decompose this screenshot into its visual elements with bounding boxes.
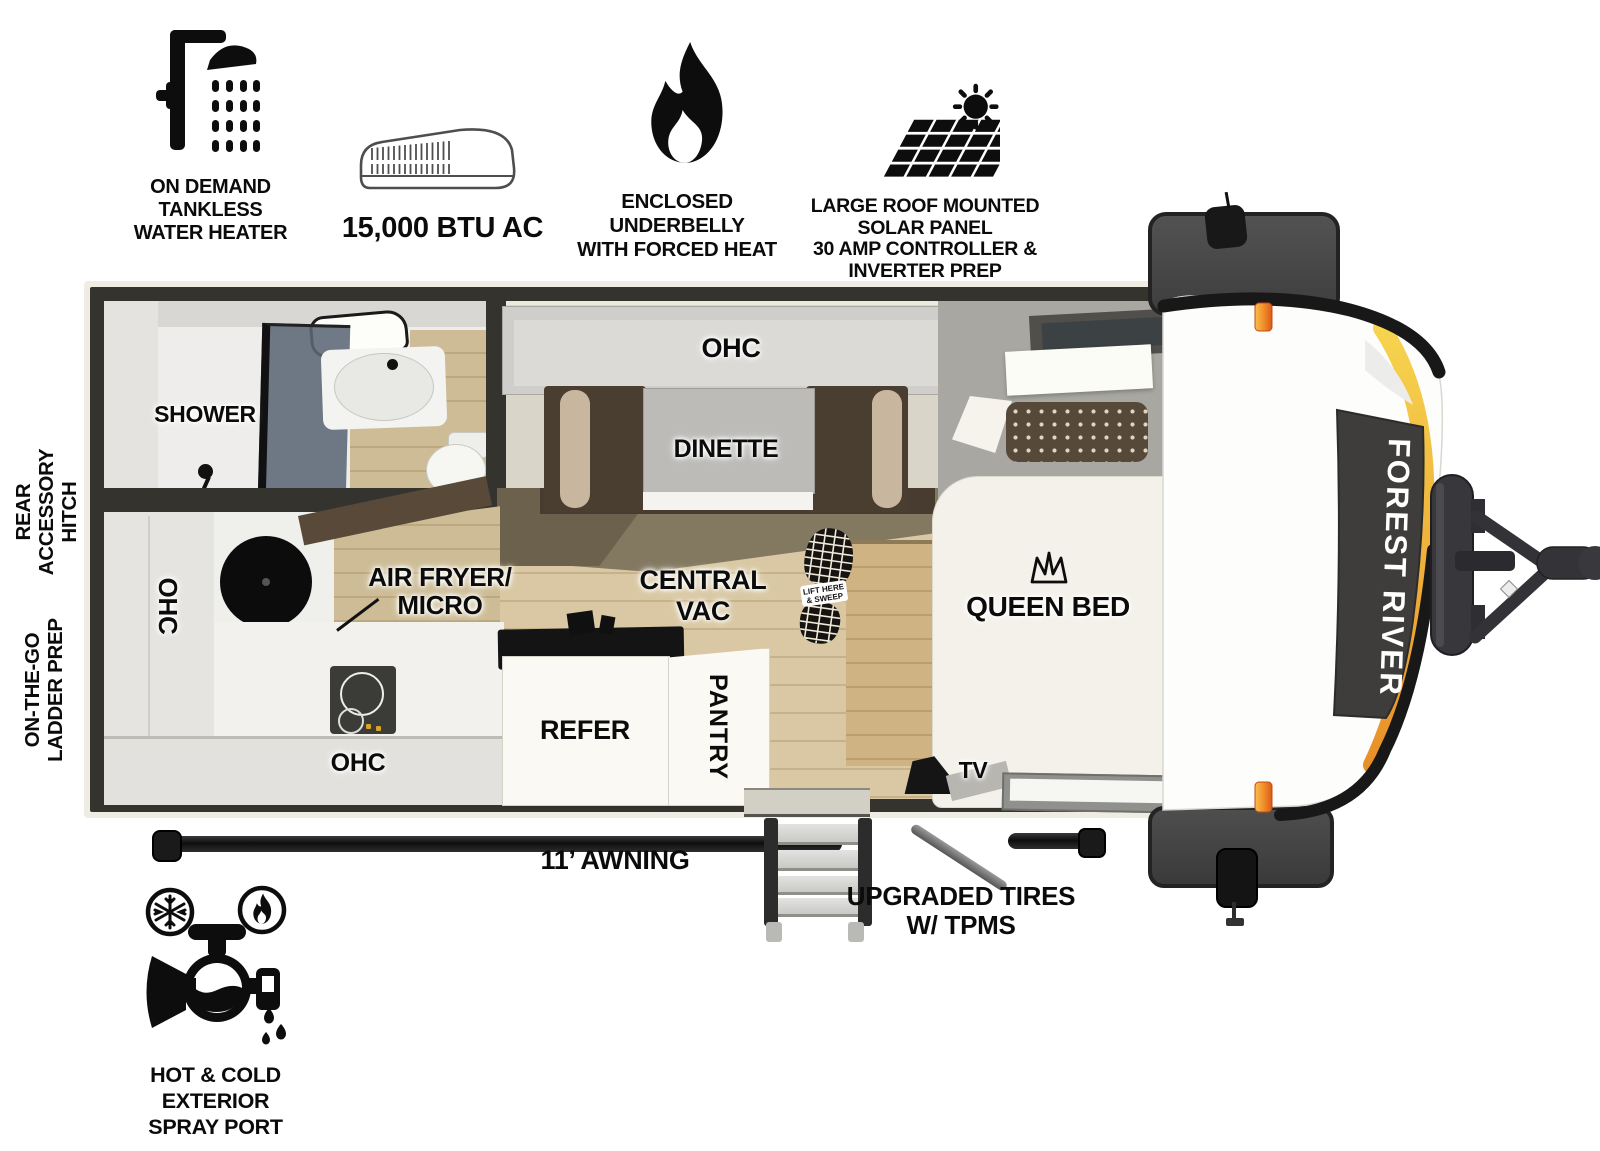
entry-threshold <box>744 788 870 817</box>
awning-rod-right-endcap <box>1078 828 1106 858</box>
forced-heat-flame-icon <box>634 36 742 184</box>
dinette-table-end <box>643 492 813 510</box>
central-vac-label: CENTRAL VAC <box>608 565 798 627</box>
awning-rod-endcap <box>152 830 182 862</box>
ohc-kitchen-left-wrap: OHC <box>153 561 183 651</box>
dinette-label: DINETTE <box>646 436 806 464</box>
spray-port-faucet-icon <box>138 922 298 1062</box>
queen-bed-label: QUEEN BED <box>948 592 1148 623</box>
ohc-kitchen-bottom-label: OHC <box>316 750 400 778</box>
water-heater-label: ON DEMAND TANKLESS WATER HEATER <box>118 176 303 245</box>
stabilizer-jack <box>1216 848 1258 908</box>
tv-label: TV <box>950 758 996 783</box>
cooktop-knob1 <box>366 724 371 729</box>
awning-rod <box>162 836 842 852</box>
ac-label: 15,000 BTU AC <box>330 213 555 245</box>
front-cap: FOREST RIVER <box>1130 270 1470 930</box>
refer-label: REFER <box>512 716 658 746</box>
tires-label: UPGRADED TIRES W/ TPMS <box>846 882 1076 940</box>
cooktop-knob2 <box>376 726 381 731</box>
wardrobe-cabinet <box>846 540 941 766</box>
marker-light-bottom <box>1255 782 1272 812</box>
rear-hitch-label: REAR ACCESSORY HITCH <box>12 449 81 575</box>
ohc-dinette-label: OHC <box>681 334 781 364</box>
ladder-prep-label-wrap: ON-THE-GO LADDER PREP <box>19 600 69 780</box>
rear-hitch-label-wrap: REAR ACCESSORY HITCH <box>11 402 81 622</box>
air-fryer-label: AIR FRYER/ MICRO <box>348 563 532 619</box>
underbelly-label: ENCLOSED UNDERBELLY WITH FORCED HEAT <box>562 190 792 262</box>
pantry-label-wrap: PANTRY <box>702 652 732 802</box>
ladder-prep-label: ON-THE-GO LADDER PREP <box>21 618 67 762</box>
crown-icon <box>1026 550 1072 588</box>
bathroom-left-shade <box>104 301 158 491</box>
bathroom-sink-basin <box>334 353 434 421</box>
awning-label: 11’ AWNING <box>510 846 720 876</box>
bed-bolster-pillow <box>1006 402 1148 462</box>
entry-step-rail-left <box>764 818 778 926</box>
tongue-hitch <box>1425 455 1600 690</box>
solar-label: LARGE ROOF MOUNTED SOLAR PANEL 30 AMP CO… <box>780 196 1070 282</box>
entry-step-foot-left <box>766 922 782 942</box>
shower-label: SHOWER <box>140 402 270 427</box>
floorplan-page: ON DEMAND TANKLESS WATER HEATER 15,000 B… <box>0 0 1600 1151</box>
kitchen-sink-drain <box>262 578 270 586</box>
ohc-kitchen-left-label: OHC <box>154 578 183 635</box>
marker-light-top <box>1255 303 1272 331</box>
cooktop-burner-small <box>338 708 364 734</box>
entry-step-tread1 <box>778 824 858 845</box>
dinette-bench-left-cushion <box>560 390 590 508</box>
refer-top-item1 <box>567 610 596 635</box>
propane-fill-cap <box>1204 204 1248 250</box>
bathroom-faucet <box>387 359 398 370</box>
entry-step-tread2 <box>778 850 858 871</box>
solar-panel-icon <box>860 78 1000 182</box>
pantry-label: PANTRY <box>703 674 731 780</box>
tankless-water-heater-icon <box>152 24 272 172</box>
ac-unit-icon <box>356 124 520 196</box>
jack-foot <box>1226 918 1244 926</box>
dinette-bench-right-cushion <box>872 390 902 508</box>
kitchen-bottom-counter <box>104 736 520 805</box>
spray-port-label: HOT & COLD EXTERIOR SPRAY PORT <box>98 1062 333 1140</box>
